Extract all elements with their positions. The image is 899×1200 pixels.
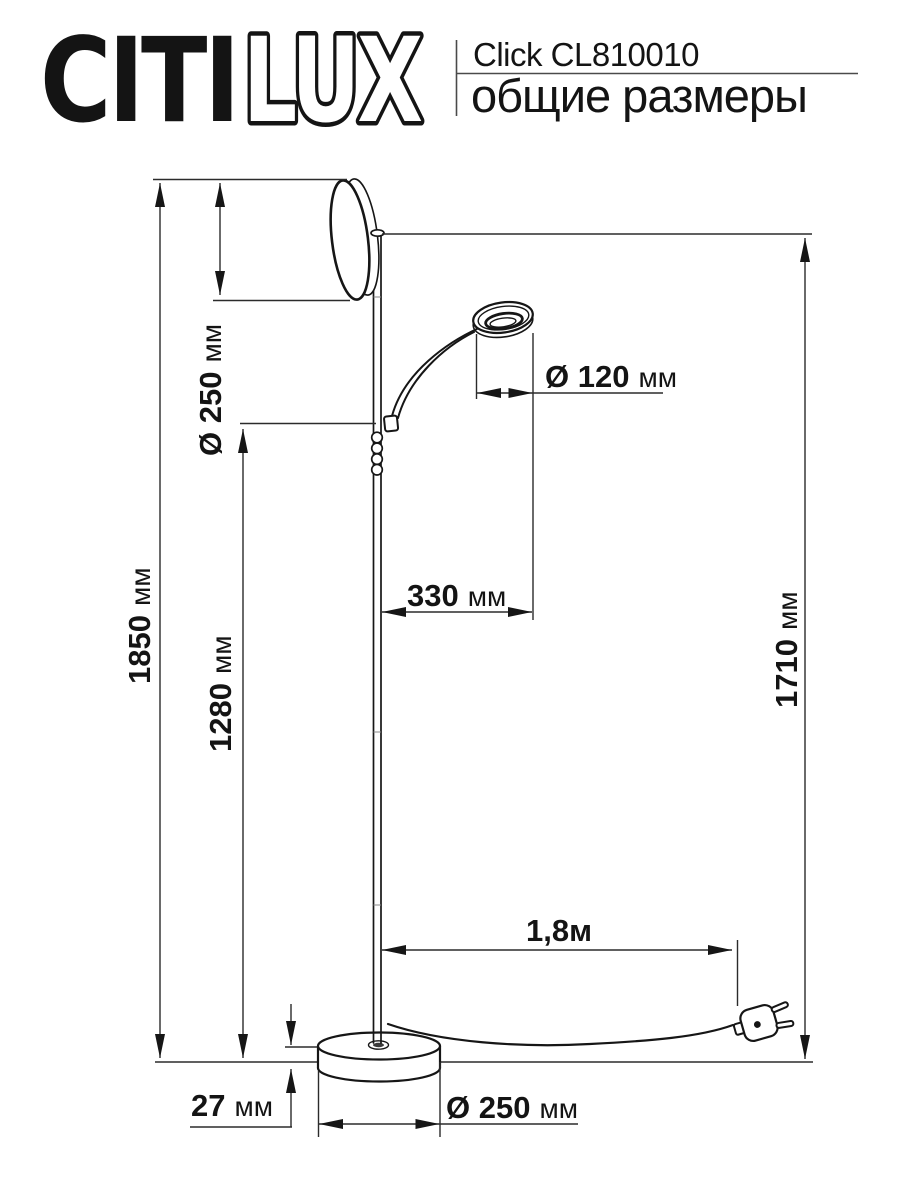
power-plug: [731, 998, 796, 1045]
dim-reading-diameter: Ø 120мм: [477, 333, 677, 620]
lamp-base: [318, 1033, 440, 1082]
dim-plug-height: 1710мм: [382, 234, 812, 1059]
gooseneck-inner: [398, 332, 474, 418]
dim-label-arm-length: 330мм: [407, 578, 506, 613]
dim-label-plug-height: 1710мм: [769, 592, 804, 708]
product-name: Click CL810010: [473, 36, 699, 73]
switch-button-2: [372, 443, 383, 454]
logo-solid-part: CITI: [40, 12, 237, 149]
dim-label-base-diameter: Ø 250мм: [446, 1090, 578, 1125]
gooseneck-outer: [392, 328, 479, 416]
reading-lamp: [384, 298, 535, 431]
switch-button-1: [372, 432, 383, 443]
dim-base-height: 27мм: [190, 1004, 317, 1127]
dim-shade-diameter: Ø 250мм: [193, 183, 350, 456]
dim-label-base-height: 27мм: [191, 1088, 273, 1123]
dim-cable-length: 1,8м: [382, 913, 738, 1006]
plug-prong-bottom: [776, 1021, 794, 1029]
dim-label-total-height: 1850мм: [122, 568, 157, 684]
lamp-dimension-drawing: CITILUX Click CL810010 общие размеры: [0, 0, 899, 1200]
pole-top-cap: [371, 230, 384, 236]
main-shade: [325, 177, 385, 302]
header: CITILUX Click CL810010 общие размеры: [40, 12, 858, 149]
logo-outline-part: LUX: [243, 12, 421, 149]
power-cable: [388, 1024, 733, 1045]
base-pole-hole: [373, 1043, 384, 1047]
gooseneck-connector: [384, 415, 398, 431]
dim-label-reading-diameter: Ø 120мм: [545, 359, 677, 394]
switch-button-3: [372, 454, 383, 465]
switch-button-4: [372, 464, 383, 475]
dim-label-shade-diameter: Ø 250мм: [193, 324, 228, 456]
citilux-logo: CITILUX: [40, 12, 421, 149]
dim-total-height: 1850мм: [122, 180, 347, 1059]
dim-lower-height: 1280мм: [203, 424, 376, 1059]
page-subtitle: общие размеры: [471, 69, 807, 122]
plug-prong-top: [771, 1001, 789, 1012]
dimension-sheet: CITILUX Click CL810010 общие размеры: [0, 0, 899, 1200]
pole: [374, 236, 382, 1043]
dim-arm-length: 330мм: [382, 578, 532, 613]
dim-label-lower-height: 1280мм: [203, 636, 238, 752]
dim-label-cable-length: 1,8м: [526, 913, 592, 948]
